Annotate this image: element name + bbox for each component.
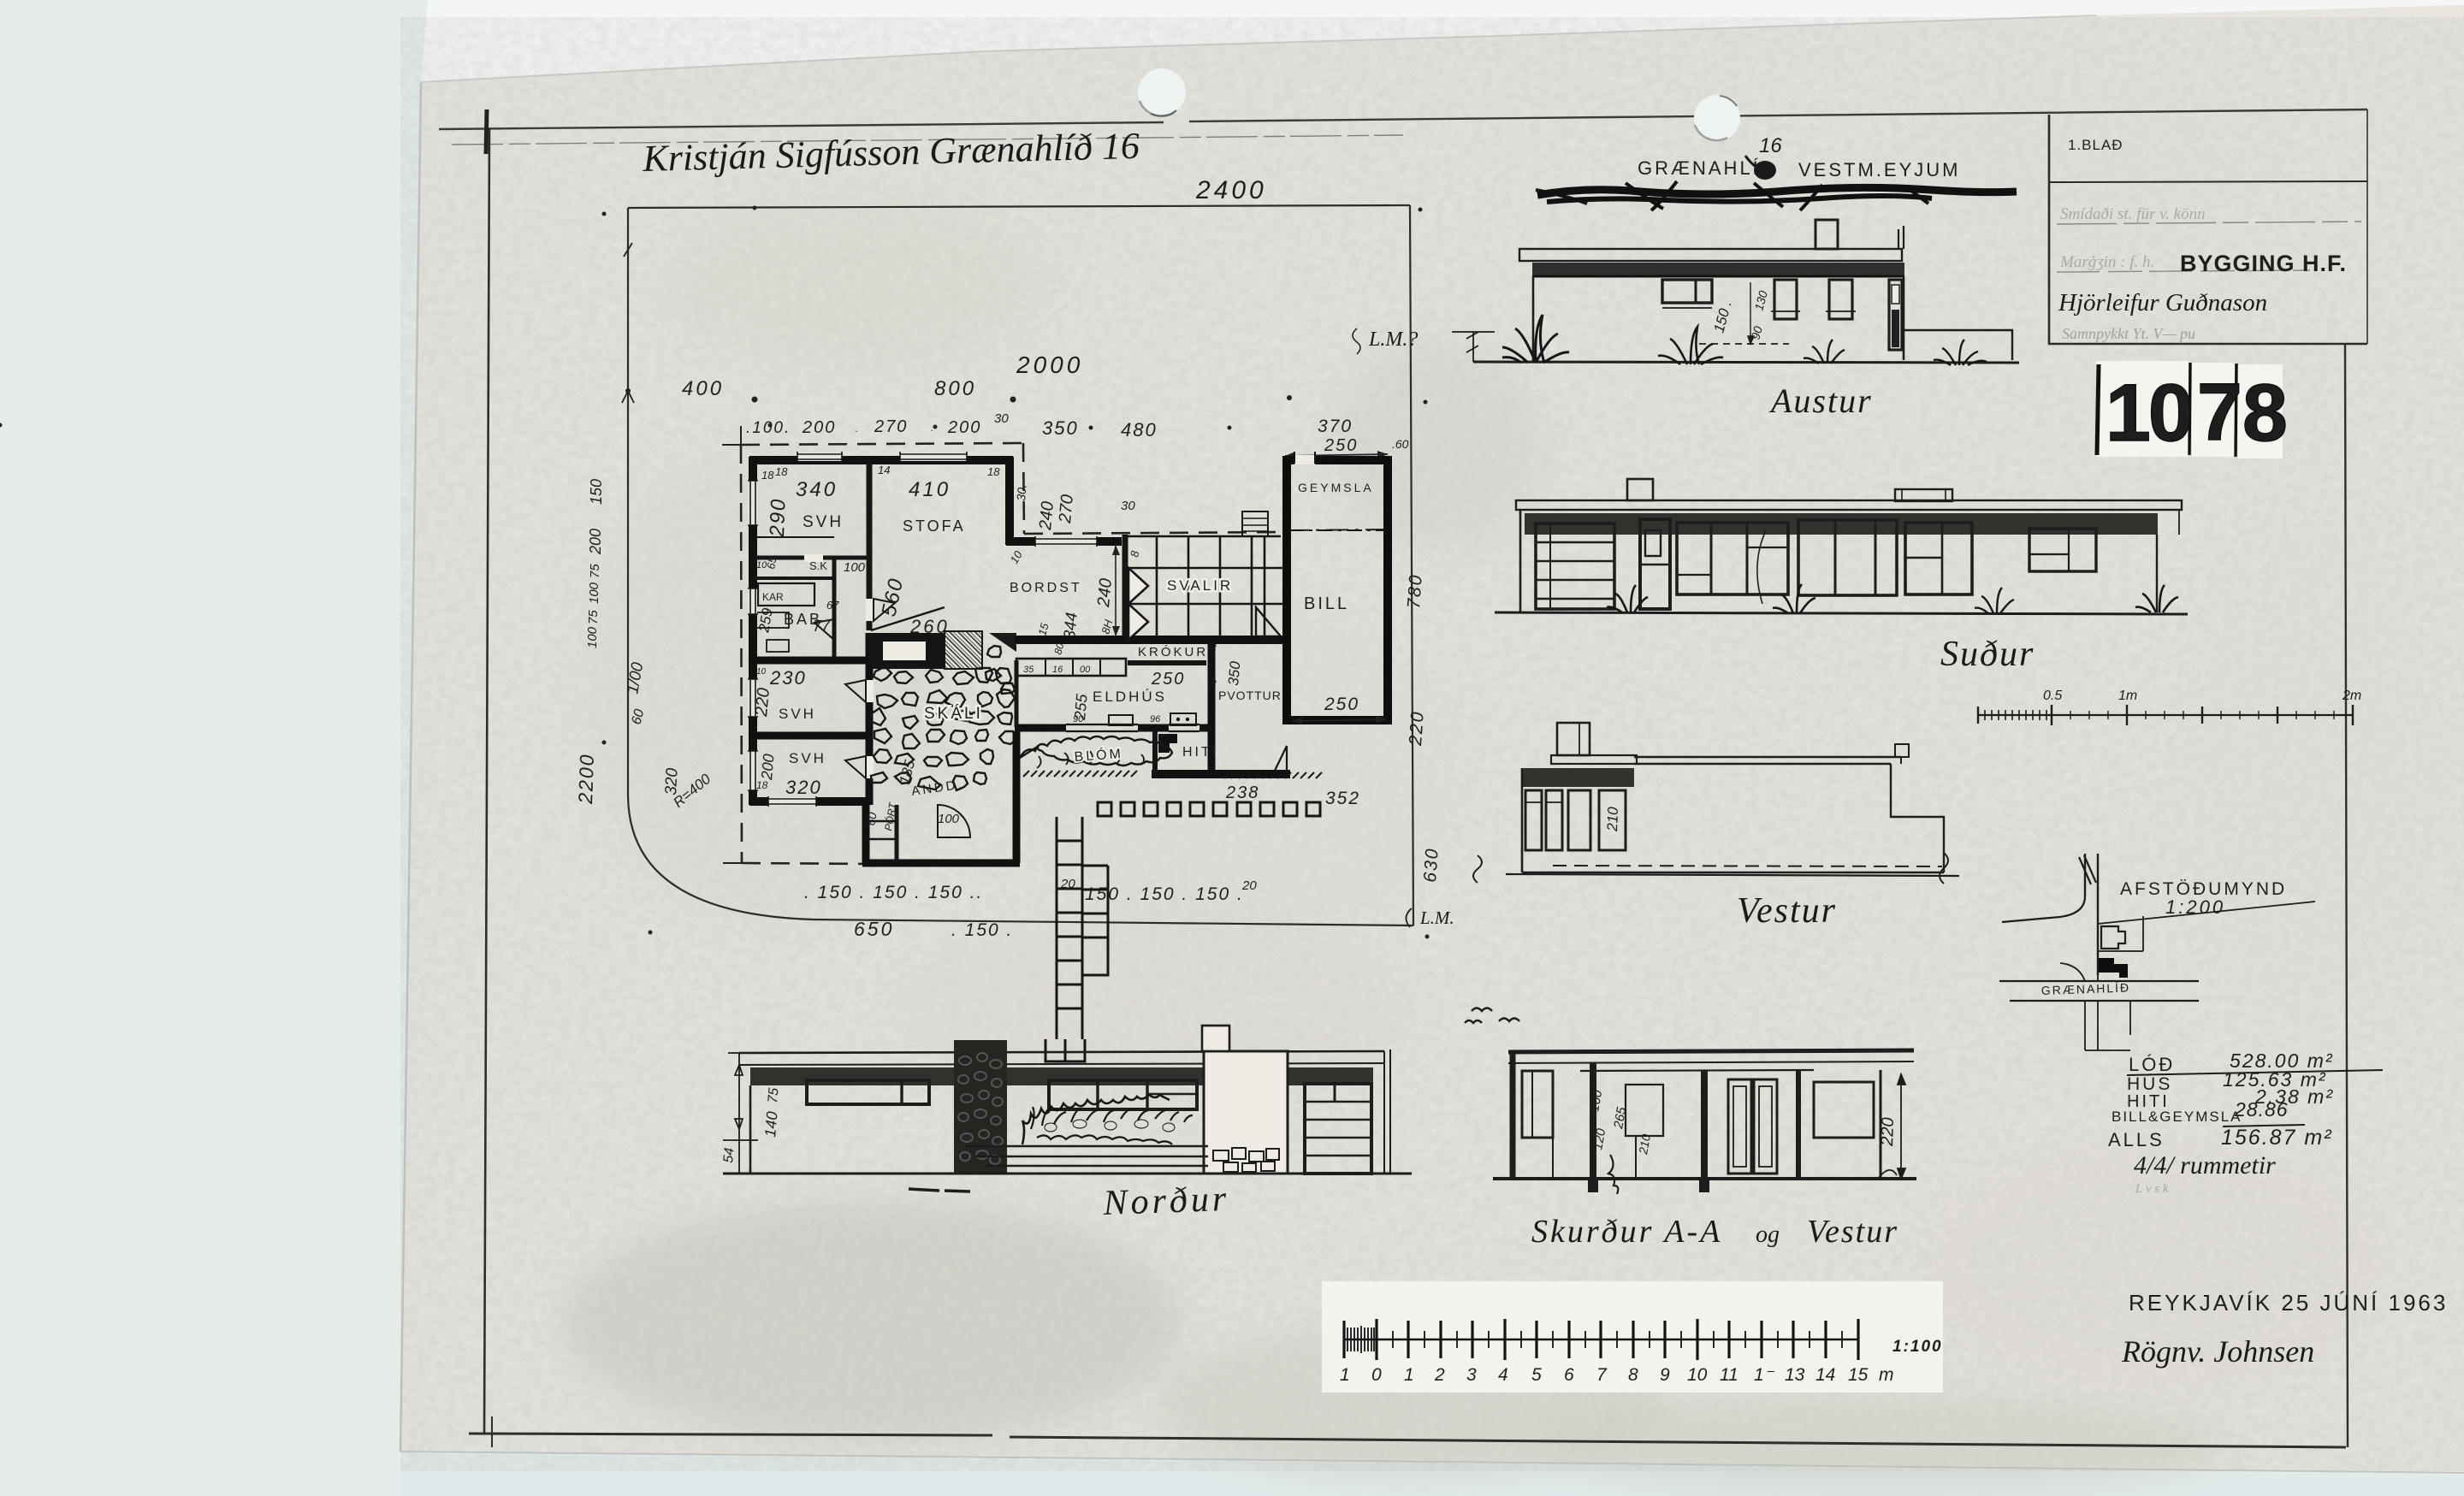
svg-text:L.M.: L.M. — [1419, 908, 1454, 928]
svg-text:270: 270 — [1056, 494, 1077, 524]
svg-text:1: 1 — [1340, 1365, 1350, 1385]
svg-text:SVH: SVH — [789, 750, 826, 766]
svg-text:250: 250 — [1324, 436, 1358, 455]
svg-text:150 . 150 . 150 .: 150 . 150 . 150 . — [1085, 884, 1244, 904]
svg-text:HÚS: HÚS — [2127, 1074, 2172, 1094]
svg-text:LÓÐ: LÓÐ — [2129, 1054, 2175, 1075]
svg-text:270: 270 — [874, 417, 908, 436]
svg-text:HITI: HITI — [1182, 745, 1218, 760]
svg-text:75: 75 — [588, 564, 602, 578]
svg-text:SVH: SVH — [803, 513, 844, 531]
svg-text:20: 20 — [1241, 878, 1257, 893]
svg-text:54: 54 — [721, 1147, 737, 1163]
svg-text:10: 10 — [756, 667, 767, 677]
svg-text:400: 400 — [682, 377, 724, 400]
svg-text:100: 100 — [844, 560, 866, 575]
svg-text:320: 320 — [785, 777, 822, 798]
svg-text:1: 1 — [1404, 1365, 1414, 1385]
svg-text:GEYMSLA: GEYMSLA — [1298, 481, 1374, 494]
svg-text:200: 200 — [758, 754, 778, 782]
svg-text:100: 100 — [938, 812, 960, 826]
svg-text:100: 100 — [587, 582, 601, 604]
svg-text:m: m — [1879, 1365, 1894, 1385]
svg-text:18: 18 — [761, 469, 774, 482]
svg-text:16: 16 — [1759, 134, 1782, 157]
svg-text:370: 370 — [1318, 417, 1353, 436]
svg-text:Suður: Suður — [1940, 635, 2035, 674]
svg-text:1:100: 1:100 — [1892, 1338, 1943, 1356]
svg-text:28.86: 28.86 — [2234, 1098, 2289, 1121]
svg-text:10: 10 — [1687, 1365, 1708, 1385]
svg-text:140: 140 — [761, 1111, 781, 1138]
svg-text:14: 14 — [878, 464, 890, 476]
svg-text:230: 230 — [769, 667, 807, 689]
svg-text:2400: 2400 — [1195, 176, 1267, 204]
svg-text:1.BLAÐ: 1.BLAÐ — [2068, 137, 2123, 153]
svg-text:240: 240 — [1094, 577, 1116, 608]
svg-text:75: 75 — [586, 610, 601, 624]
svg-text:350: 350 — [1225, 660, 1243, 686]
svg-text:30: 30 — [1121, 499, 1135, 513]
svg-text:8: 8 — [1628, 1365, 1638, 1385]
svg-text:2: 2 — [1434, 1365, 1445, 1385]
svg-text:8: 8 — [2242, 368, 2288, 458]
svg-text:KAR: KAR — [762, 591, 784, 603]
svg-text:630: 630 — [1420, 847, 1442, 884]
svg-text:156.87 m²: 156.87 m² — [2221, 1126, 2333, 1150]
svg-text:VESTM.EYJUM: VESTM.EYJUM — [1798, 159, 1960, 180]
svg-text:220: 220 — [1878, 1117, 1898, 1147]
svg-text:Norður: Norður — [1102, 1180, 1230, 1223]
svg-text:238: 238 — [1225, 783, 1259, 802]
svg-text:BORDST: BORDST — [1010, 581, 1082, 595]
svg-text:60: 60 — [863, 811, 879, 826]
svg-text:77: 77 — [813, 618, 831, 635]
svg-text:1m: 1m — [2118, 689, 2137, 703]
svg-text:200: 200 — [947, 418, 981, 437]
svg-text:SKÁLI: SKÁLI — [924, 705, 983, 723]
svg-text:200: 200 — [802, 418, 836, 437]
svg-text:L v s k: L v s k — [2135, 1182, 2169, 1196]
svg-text:15: 15 — [1848, 1365, 1869, 1385]
svg-text:16: 16 — [1052, 665, 1063, 675]
svg-text:.60: .60 — [1392, 437, 1409, 451]
svg-text:290: 290 — [766, 497, 791, 538]
svg-text:6: 6 — [1564, 1365, 1574, 1385]
svg-text:9: 9 — [1660, 1365, 1670, 1385]
svg-text:ALLS: ALLS — [2108, 1129, 2165, 1150]
svg-text:BYGGING H.F.: BYGGING H.F. — [2180, 251, 2347, 276]
svg-text:Vestur: Vestur — [1737, 891, 1837, 931]
svg-text:. 150 . 150 . 150 ..: . 150 . 150 . 150 .. — [804, 883, 983, 902]
svg-text:BILL&GEYMSLA: BILL&GEYMSLA — [2112, 1109, 2242, 1125]
svg-text:PVOTTUR: PVOTTUR — [1218, 689, 1282, 702]
svg-text:75: 75 — [766, 1087, 781, 1103]
svg-text:800: 800 — [934, 377, 976, 400]
svg-text:96: 96 — [1150, 714, 1161, 724]
svg-text:150: 150 — [588, 479, 605, 505]
svg-text:780: 780 — [1404, 573, 1426, 610]
svg-text:250: 250 — [1324, 695, 1359, 714]
svg-text:L.M.?: L.M.? — [1368, 328, 1418, 351]
svg-text:STOFA: STOFA — [903, 517, 966, 535]
svg-text:340: 340 — [796, 478, 838, 501]
svg-text:. 150 .: . 150 . — [951, 920, 1013, 940]
svg-text:650: 650 — [854, 918, 894, 940]
svg-text:0: 0 — [1371, 1365, 1382, 1385]
svg-text:Austur: Austur — [1768, 381, 1873, 420]
svg-text:5: 5 — [1531, 1365, 1542, 1385]
svg-text:SVH: SVH — [779, 706, 816, 722]
svg-text:352: 352 — [1325, 789, 1360, 808]
svg-text:2m: 2m — [2342, 689, 2361, 703]
svg-text:14: 14 — [1815, 1365, 1835, 1385]
svg-text:7: 7 — [1596, 1365, 1608, 1385]
svg-text:Vestur: Vestur — [1807, 1214, 1898, 1250]
svg-text:BILL: BILL — [1304, 594, 1349, 613]
svg-text:SVALIR: SVALIR — [1167, 577, 1233, 594]
svg-text:4: 4 — [1498, 1365, 1508, 1385]
svg-text:35: 35 — [1023, 665, 1034, 675]
svg-text:.100.: .100. — [746, 419, 791, 437]
svg-text:200: 200 — [587, 529, 604, 555]
svg-text:2200: 2200 — [574, 753, 598, 805]
svg-text:og: og — [1756, 1221, 1780, 1248]
svg-text:13: 13 — [1785, 1365, 1805, 1385]
svg-text:67: 67 — [826, 599, 839, 612]
svg-text:REYKJAVÍK 25 JÚNÍ 1963: REYKJAVÍK 25 JÚNÍ 1963 — [2129, 1290, 2448, 1316]
svg-text:4/4/ rummetir: 4/4/ rummetir — [2134, 1151, 2276, 1180]
svg-text:ELDHÚS: ELDHÚS — [1093, 689, 1167, 705]
svg-text:18: 18 — [775, 465, 788, 478]
svg-text:7: 7 — [2197, 367, 2242, 458]
svg-text:100: 100 — [585, 626, 600, 648]
svg-text:10: 10 — [2106, 368, 2191, 458]
svg-text:18: 18 — [987, 465, 1000, 478]
svg-text:KRÓKUR: KRÓKUR — [1138, 645, 1208, 659]
svg-text:20: 20 — [1060, 877, 1075, 891]
svg-text:210: 210 — [1604, 807, 1621, 833]
svg-text:11: 11 — [1720, 1365, 1738, 1385]
svg-text:1:200: 1:200 — [2165, 896, 2225, 918]
svg-text:30.: 30. — [1014, 483, 1029, 501]
svg-text:30: 30 — [994, 411, 1009, 426]
svg-text:S.K: S.K — [809, 559, 827, 572]
svg-text:00: 00 — [1080, 665, 1091, 675]
svg-text:3: 3 — [1466, 1365, 1477, 1385]
svg-text:220: 220 — [752, 687, 773, 718]
svg-text:240: 240 — [1036, 500, 1057, 531]
svg-text:90: 90 — [1073, 714, 1084, 724]
svg-text:1⁻: 1⁻ — [1754, 1365, 1775, 1385]
svg-text:350: 350 — [1042, 417, 1079, 439]
svg-text:480: 480 — [1121, 419, 1158, 441]
svg-text:Hjörleifur Guðnason: Hjörleifur Guðnason — [2058, 289, 2267, 316]
svg-text:Rögnv. Johnsen: Rögnv. Johnsen — [2121, 1334, 2314, 1369]
svg-text:.: . — [856, 424, 858, 435]
svg-text:220: 220 — [1406, 710, 1428, 748]
svg-text:Skurður A-A: Skurður A-A — [1531, 1214, 1722, 1250]
svg-text:Marģʒin : f. h.: Marģʒin : f. h. — [2059, 253, 2154, 271]
svg-text:0.5: 0.5 — [2043, 689, 2062, 703]
svg-text:18: 18 — [756, 779, 768, 791]
svg-text:Samnpykkt Yt. V— pu: Samnpykkt Yt. V— pu — [2062, 325, 2195, 342]
svg-text:2000: 2000 — [1016, 352, 1083, 378]
svg-text:250: 250 — [1151, 670, 1185, 689]
svg-text:410: 410 — [909, 478, 951, 501]
svg-text:Smídaði st. für v. könn: Smídaði st. für v. könn — [2060, 205, 2206, 223]
svg-text:.: . — [931, 423, 933, 434]
